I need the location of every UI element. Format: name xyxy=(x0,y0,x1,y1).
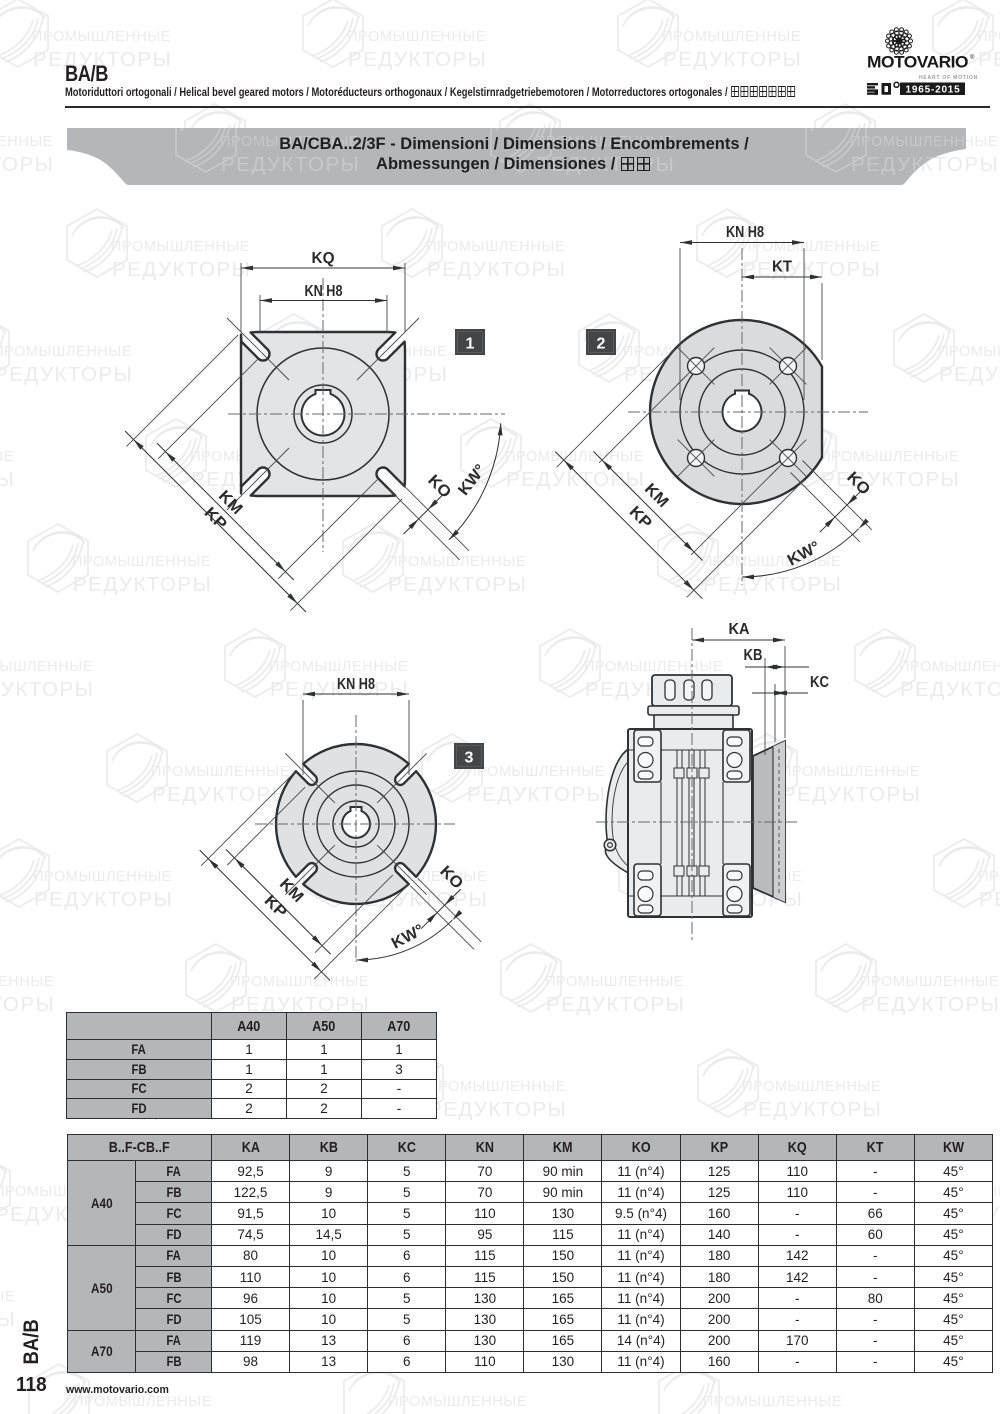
svg-text:KQ: KQ xyxy=(312,250,335,267)
svg-text:KW°: KW° xyxy=(389,922,427,953)
svg-text:KB: KB xyxy=(744,647,763,664)
svg-text:KO: KO xyxy=(424,472,454,502)
svg-text:KW°: KW° xyxy=(455,462,489,499)
svg-text:1: 1 xyxy=(466,336,475,353)
svg-text:KO: KO xyxy=(843,469,873,499)
svg-text:KC: KC xyxy=(810,674,829,691)
svg-text:KO: KO xyxy=(436,863,466,893)
svg-text:KA: KA xyxy=(729,621,750,638)
svg-text:KN H8: KN H8 xyxy=(337,676,375,693)
svg-text:KP: KP xyxy=(626,503,655,532)
svg-text:3: 3 xyxy=(465,750,474,767)
svg-text:KT: KT xyxy=(772,259,792,276)
svg-text:KN H8: KN H8 xyxy=(726,224,764,241)
svg-text:KN H8: KN H8 xyxy=(305,283,343,300)
svg-text:2: 2 xyxy=(597,336,606,353)
svg-text:KM: KM xyxy=(641,481,671,511)
